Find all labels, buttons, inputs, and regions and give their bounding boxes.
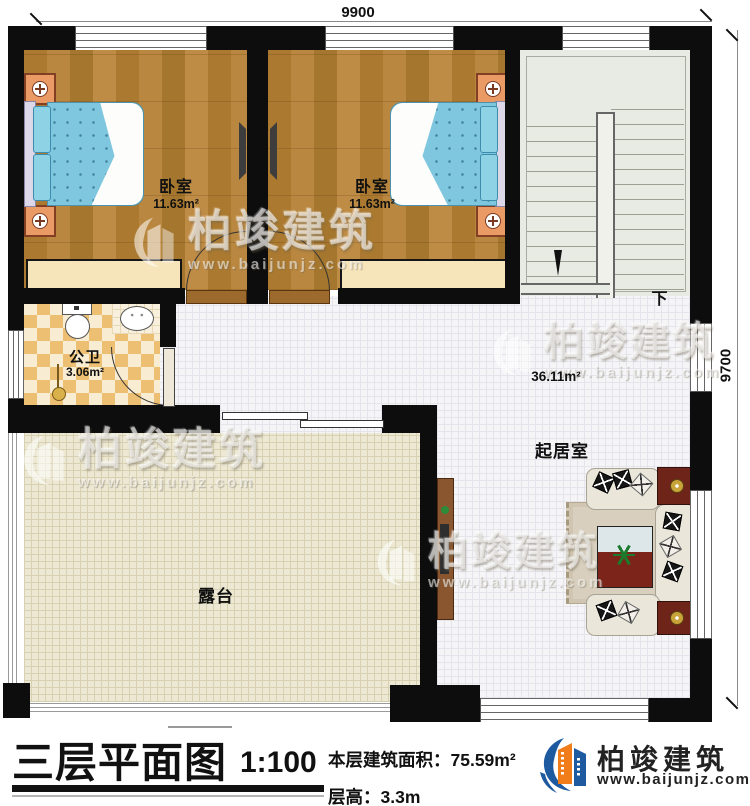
wall-segment <box>505 26 520 304</box>
terrace-sliding-door-panel <box>222 412 308 420</box>
dimension-top: 9900 <box>318 4 398 21</box>
window <box>325 26 454 50</box>
plan-scale: 1:100 <box>240 746 317 780</box>
stair-flight-right <box>611 95 684 296</box>
title-underline-thin <box>12 795 324 797</box>
brand-url: www.baijunjz.com <box>597 771 750 788</box>
plan-title: 三层平面图 <box>12 729 227 790</box>
dimension-right: 9700 <box>718 338 735 394</box>
wall-segment <box>160 302 176 347</box>
floor-height-label: 层高： <box>328 787 381 806</box>
bed-mattress <box>47 102 144 206</box>
corner-lamp-icon <box>670 611 684 625</box>
stair-landing-edge <box>521 283 610 295</box>
bathroom-label: 公卫 3.06m² <box>50 349 120 380</box>
wall-segment <box>690 26 712 323</box>
title-block: 三层平面图 1:100 本层建筑面积：75.59m² 层高：3.3m 柏竣建筑 … <box>0 726 750 806</box>
bed-blanket <box>48 103 143 205</box>
room-name: 露台 <box>180 587 252 607</box>
bed-pillow <box>480 154 498 201</box>
table-lamp-icon <box>485 213 501 229</box>
room-name: 公卫 <box>50 349 120 366</box>
wall-segment <box>390 685 480 722</box>
window <box>690 323 712 392</box>
bedroom2-door <box>269 290 330 304</box>
bathroom-door <box>163 348 175 407</box>
wall-segment <box>8 288 185 304</box>
wall-segment <box>8 26 24 330</box>
wall-segment <box>420 405 437 705</box>
floor-area-value: 75.59m² <box>451 750 516 770</box>
terrace-floor <box>24 433 437 702</box>
window <box>562 26 650 50</box>
window <box>690 490 712 639</box>
title-overline <box>168 726 232 728</box>
wall-segment <box>690 390 712 490</box>
terrace-label: 露台 <box>180 587 252 607</box>
bedroom2-label: 卧室 11.63m² <box>332 179 412 212</box>
corner-lamp-icon <box>670 479 684 493</box>
dimension-line <box>737 30 738 706</box>
living-room-area-label: 36.11m² <box>516 369 596 385</box>
brand-logo-icon <box>538 734 592 794</box>
bedroom1-label: 卧室 11.63m² <box>136 179 216 212</box>
bed-pillow <box>480 106 498 153</box>
sofa-cushion <box>663 512 683 532</box>
wall-segment <box>647 698 712 722</box>
terrace-sliding-door-panel <box>300 420 384 428</box>
title-underline <box>12 785 324 792</box>
living-room-label: 起居室 <box>522 442 602 462</box>
wall-segment <box>338 288 518 304</box>
terrace-railing <box>8 433 20 685</box>
window <box>480 698 649 722</box>
wall-segment <box>8 405 220 433</box>
floor-area-label: 本层建筑面积： <box>328 750 451 770</box>
terrace-corner-post <box>3 683 30 718</box>
tv-screen <box>440 524 449 574</box>
dimension-tick <box>700 9 713 22</box>
direction-text: 下 <box>646 291 674 309</box>
dimension-tick <box>30 13 43 26</box>
bed-pillow <box>33 154 51 201</box>
wall-tv <box>239 122 246 180</box>
floor-height-value: 3.3m <box>381 787 421 806</box>
floor-area-text: 本层建筑面积：75.59m² <box>328 747 516 772</box>
bed-pillow <box>33 106 51 153</box>
table-lamp-icon <box>32 213 48 229</box>
sink-basin <box>120 306 154 331</box>
room-name: 起居室 <box>522 442 602 462</box>
room-area: 3.06m² <box>50 366 120 380</box>
room-area: 11.63m² <box>332 197 412 211</box>
room-name: 卧室 <box>136 179 216 197</box>
dimension-line <box>36 21 712 22</box>
table-lamp-icon <box>485 81 501 97</box>
terrace-railing <box>28 702 390 712</box>
toilet-bowl <box>65 314 90 339</box>
window <box>75 26 207 50</box>
room-area: 36.11m² <box>516 369 596 385</box>
potted-plant-icon <box>613 544 635 566</box>
window <box>8 330 24 399</box>
stair-center-rail <box>596 112 615 298</box>
wall-tv <box>270 122 277 180</box>
stair-down-arrow-icon <box>554 250 562 276</box>
floor-height-text: 层高：3.3m <box>328 784 420 806</box>
wall-segment <box>247 26 268 304</box>
table-lamp-icon <box>32 81 48 97</box>
small-plant-icon <box>441 506 449 514</box>
floor-plan-canvas: 柏竣建筑www.baijunjz.com 柏竣建筑www.baijunjz.co… <box>0 0 750 806</box>
floor-drain-icon <box>52 387 66 401</box>
room-name: 卧室 <box>332 179 412 197</box>
room-area: 11.63m² <box>136 197 216 211</box>
nightstand <box>24 205 56 237</box>
bedroom1-door <box>186 290 247 304</box>
stairs-down-label: 下 <box>646 291 674 309</box>
